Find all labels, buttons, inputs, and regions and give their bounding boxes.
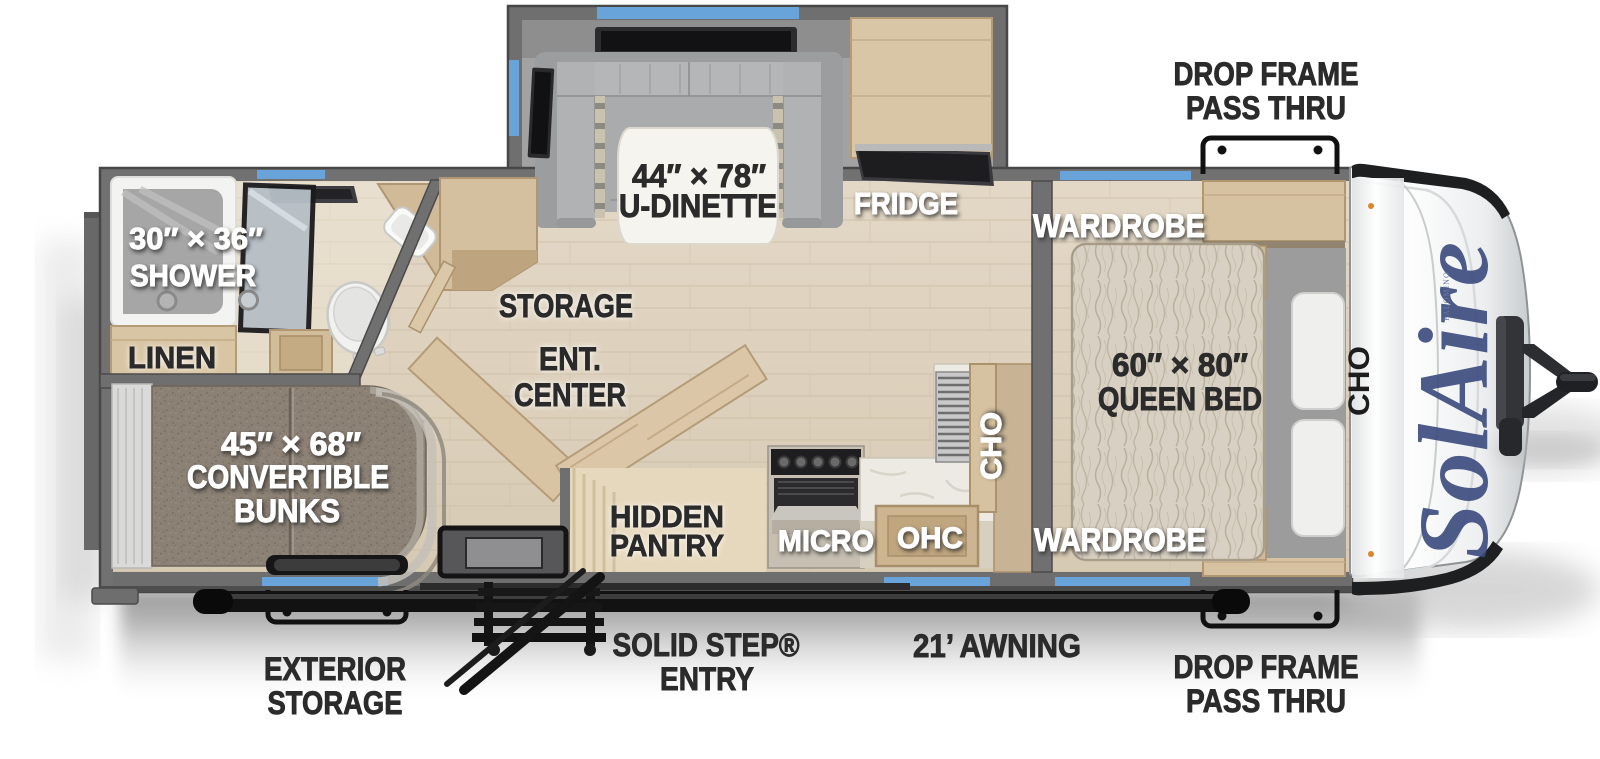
svg-text:STORAGE: STORAGE xyxy=(268,685,403,721)
svg-text:DROP FRAME: DROP FRAME xyxy=(1174,56,1359,92)
svg-text:DROP FRAME: DROP FRAME xyxy=(1174,649,1359,685)
svg-text:STORAGE: STORAGE xyxy=(499,288,633,324)
svg-text:OHC: OHC xyxy=(897,522,963,555)
svg-text:CONVERTIBLE: CONVERTIBLE xyxy=(187,459,389,495)
svg-text:U-DINETTE: U-DINETTE xyxy=(619,188,777,224)
svg-text:FRIDGE: FRIDGE xyxy=(854,186,958,221)
svg-text:PASS THRU: PASS THRU xyxy=(1186,683,1346,719)
svg-text:ENTRY: ENTRY xyxy=(660,661,754,697)
svg-text:SHOWER: SHOWER xyxy=(130,258,256,293)
svg-text:EXTERIOR: EXTERIOR xyxy=(264,651,406,687)
svg-text:CENTER: CENTER xyxy=(514,377,626,413)
svg-text:PANTRY: PANTRY xyxy=(610,528,724,563)
svg-text:21’ AWNING: 21’ AWNING xyxy=(913,628,1081,664)
svg-text:CHO: CHO xyxy=(1343,346,1376,416)
svg-text:PASS THRU: PASS THRU xyxy=(1186,90,1346,126)
svg-text:MICRO: MICRO xyxy=(778,525,874,558)
svg-text:PALOMINO: PALOMINO xyxy=(1442,271,1451,321)
svg-text:LINEN: LINEN xyxy=(128,340,216,375)
svg-text:30″ × 36″: 30″ × 36″ xyxy=(129,221,263,256)
svg-text:CHO: CHO xyxy=(976,412,1008,480)
svg-text:WARDROBE: WARDROBE xyxy=(1034,522,1206,558)
svg-text:QUEEN BED: QUEEN BED xyxy=(1098,381,1262,417)
svg-text:WARDROBE: WARDROBE xyxy=(1033,208,1205,244)
svg-text:BUNKS: BUNKS xyxy=(234,493,340,529)
svg-text:60″ × 80″: 60″ × 80″ xyxy=(1112,347,1248,383)
svg-text:SOLID STEP®: SOLID STEP® xyxy=(613,627,800,663)
svg-text:SolAire: SolAire xyxy=(1398,241,1509,559)
svg-text:ENT.: ENT. xyxy=(539,341,601,377)
svg-text:45″ × 68″: 45″ × 68″ xyxy=(221,426,361,462)
